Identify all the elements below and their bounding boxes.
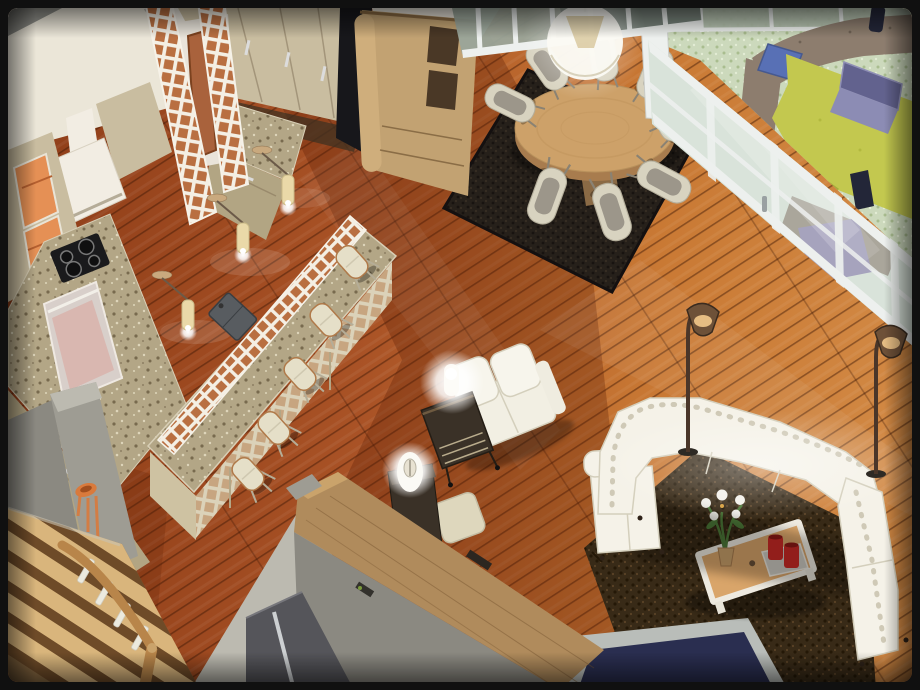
sconce-drip [78, 496, 80, 516]
vignette-bottom [8, 652, 912, 682]
bench-texture [799, 41, 802, 44]
vignette-right [884, 8, 912, 682]
door-handle[interactable] [762, 196, 767, 212]
lamp-bulb-glow [694, 315, 712, 327]
vignette-left [8, 8, 36, 682]
table-lamp[interactable] [420, 350, 484, 414]
interior-scene [0, 0, 920, 690]
sofa-leg [600, 556, 605, 561]
indicator-light [358, 586, 362, 590]
sofa-highlight [600, 410, 920, 520]
vignette-top [8, 8, 912, 38]
shelf-niche [426, 70, 458, 110]
newel-cap [147, 643, 157, 653]
game-viewport [0, 0, 920, 690]
sofa-leg [638, 516, 643, 521]
table-texture [859, 149, 862, 152]
table-texture [819, 119, 822, 122]
sconce-drip [96, 496, 98, 540]
sofa-leg [660, 550, 665, 555]
